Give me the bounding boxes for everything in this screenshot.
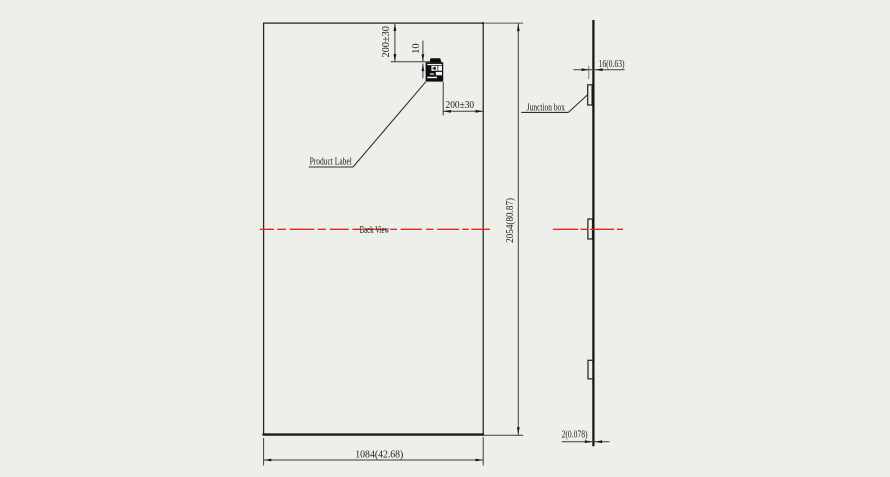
svg-text:2(0.078): 2(0.078) [562,428,588,440]
svg-text:10: 10 [410,43,422,54]
svg-text:200±30: 200±30 [380,26,392,58]
svg-text:200±30: 200±30 [446,99,475,111]
svg-text:1084(42.68): 1084(42.68) [355,449,403,461]
svg-text:Product Label: Product Label [310,157,352,168]
svg-text:16(0.63): 16(0.63) [599,58,625,70]
svg-text:Back View: Back View [360,224,390,236]
svg-text:2054(80.87): 2054(80.87) [504,198,516,243]
